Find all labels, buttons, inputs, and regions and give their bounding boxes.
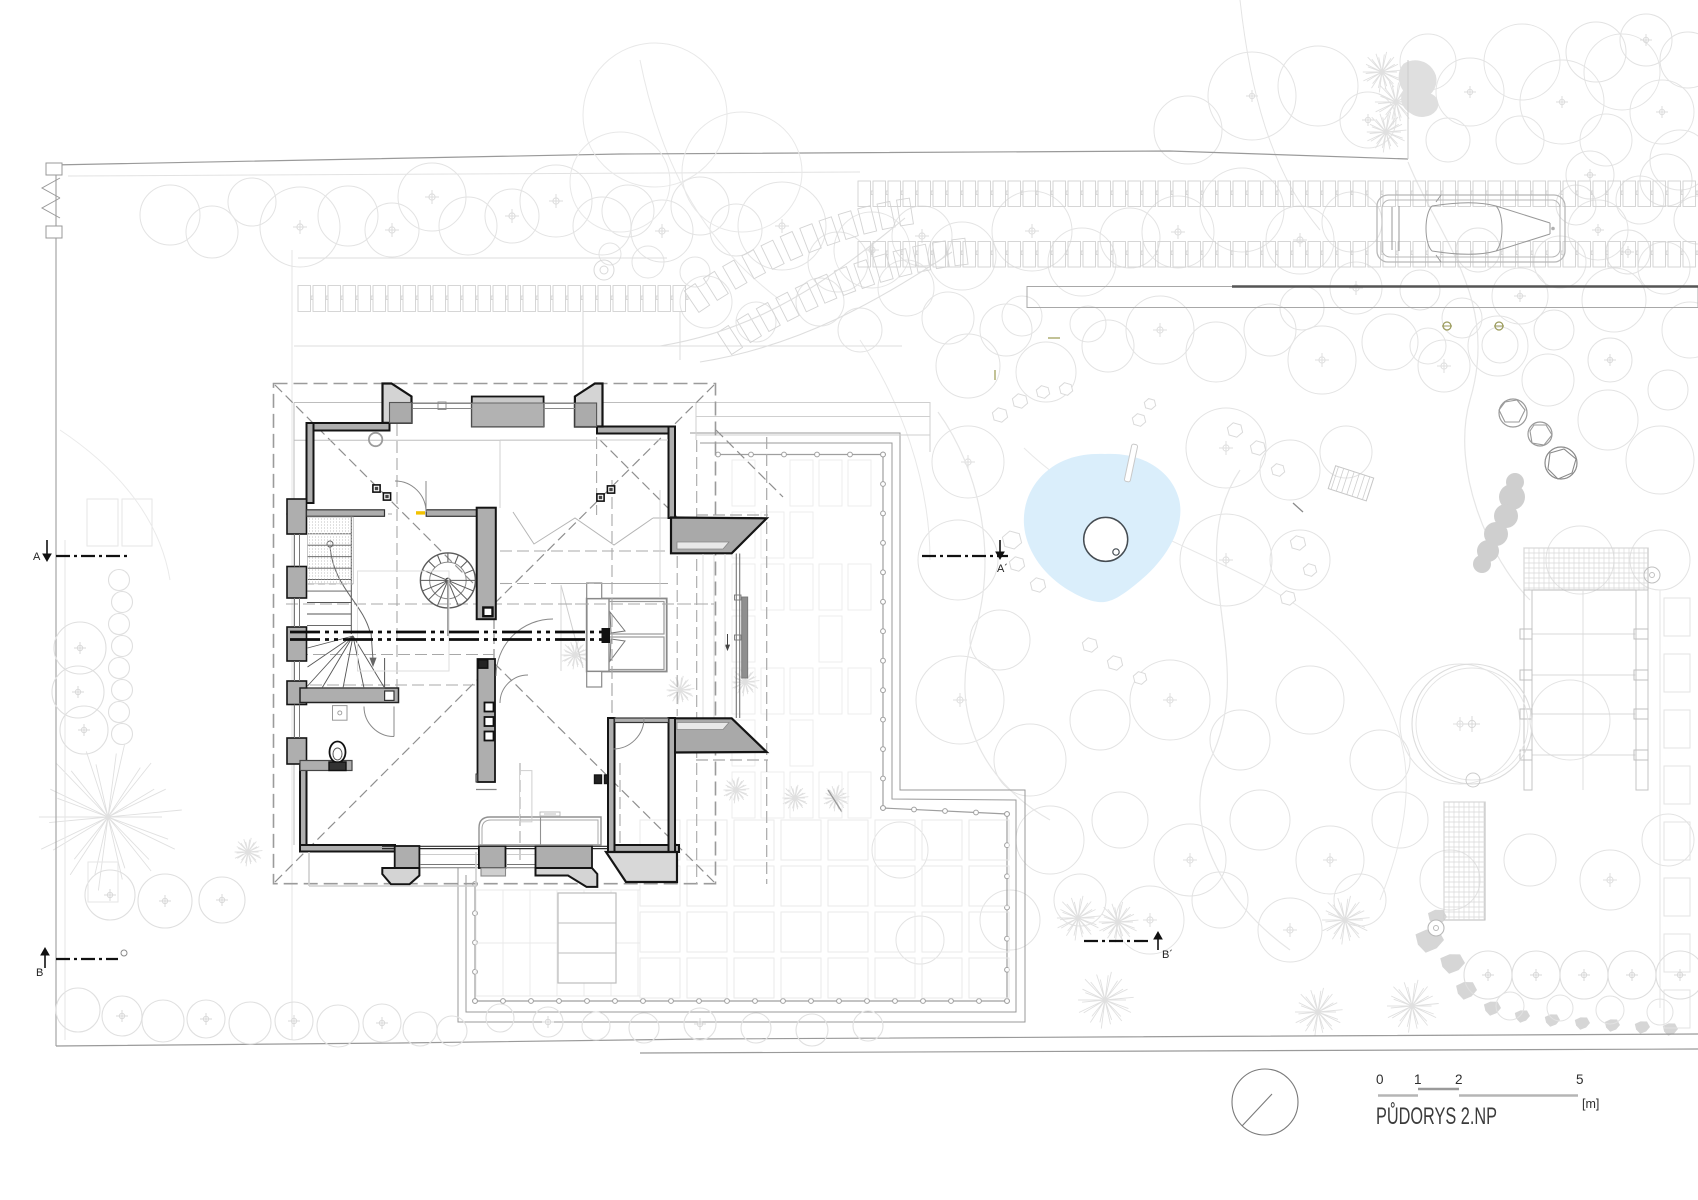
svg-text:5: 5: [1576, 1072, 1584, 1087]
svg-text:PŮDORYS 2.NP: PŮDORYS 2.NP: [1376, 1101, 1497, 1130]
svg-text:A´: A´: [997, 563, 1008, 575]
svg-text:2: 2: [1455, 1072, 1463, 1087]
svg-text:A: A: [33, 551, 41, 563]
svg-text:B: B: [36, 967, 43, 979]
svg-text:B´: B´: [1162, 949, 1173, 961]
svg-text:1: 1: [1414, 1072, 1422, 1087]
svg-text:[m]: [m]: [1582, 1097, 1599, 1111]
svg-text:0: 0: [1376, 1072, 1384, 1087]
